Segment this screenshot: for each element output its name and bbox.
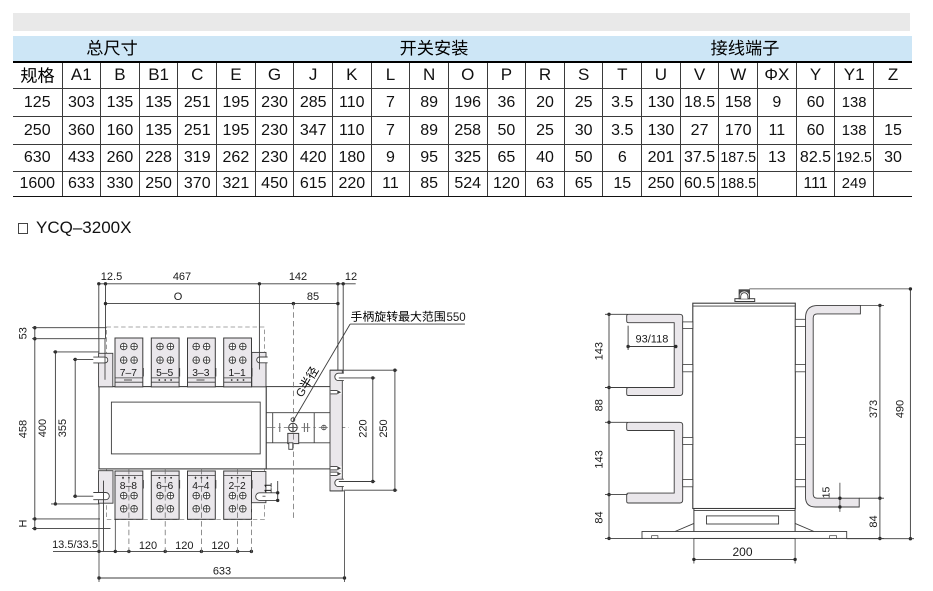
svg-text:84: 84 bbox=[594, 511, 606, 523]
svg-text:1–1: 1–1 bbox=[229, 368, 246, 379]
svg-text:88: 88 bbox=[594, 399, 606, 411]
svg-text:H: H bbox=[18, 519, 30, 527]
svg-text:13.5/33.5: 13.5/33.5 bbox=[52, 539, 98, 551]
svg-text:120: 120 bbox=[175, 540, 193, 552]
svg-text:200: 200 bbox=[732, 545, 752, 559]
svg-text:143: 143 bbox=[594, 450, 606, 468]
svg-text:467: 467 bbox=[173, 271, 191, 283]
svg-text:11: 11 bbox=[263, 482, 275, 493]
svg-text:3–3: 3–3 bbox=[192, 368, 209, 379]
svg-text:373: 373 bbox=[868, 400, 880, 418]
svg-text:85: 85 bbox=[307, 291, 319, 303]
svg-text:12: 12 bbox=[345, 271, 357, 283]
svg-text:633: 633 bbox=[213, 566, 231, 578]
svg-text:490: 490 bbox=[894, 400, 906, 418]
svg-text:220: 220 bbox=[357, 419, 369, 437]
svg-text:93/118: 93/118 bbox=[635, 334, 668, 346]
svg-text:400: 400 bbox=[37, 419, 49, 437]
svg-text:15: 15 bbox=[820, 487, 832, 499]
svg-text:250: 250 bbox=[378, 419, 390, 437]
svg-text:458: 458 bbox=[18, 420, 30, 438]
svg-text:120: 120 bbox=[139, 540, 157, 552]
svg-text:120: 120 bbox=[211, 540, 229, 552]
svg-text:O: O bbox=[174, 291, 183, 303]
svg-text:142: 142 bbox=[289, 271, 307, 283]
svg-text:84: 84 bbox=[868, 515, 880, 527]
svg-text:7–7: 7–7 bbox=[120, 368, 137, 379]
svg-text:143: 143 bbox=[594, 342, 606, 360]
svg-text:53: 53 bbox=[18, 327, 30, 339]
svg-text:550: 550 bbox=[447, 312, 466, 324]
svg-text:5–5: 5–5 bbox=[156, 368, 173, 379]
svg-text:355: 355 bbox=[57, 419, 69, 437]
svg-text:12.5: 12.5 bbox=[101, 271, 122, 283]
